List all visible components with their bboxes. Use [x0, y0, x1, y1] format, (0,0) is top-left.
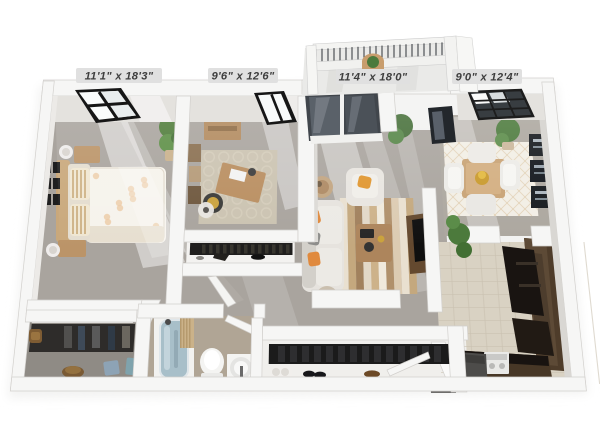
svg-text:9'0" x 12'4": 9'0" x 12'4"	[455, 71, 518, 83]
svg-text:9'6" x 12'6": 9'6" x 12'6"	[211, 70, 274, 82]
svg-text:11'1" x 18'3": 11'1" x 18'3"	[85, 70, 154, 82]
svg-text:11'4" x 18'0": 11'4" x 18'0"	[339, 71, 408, 83]
